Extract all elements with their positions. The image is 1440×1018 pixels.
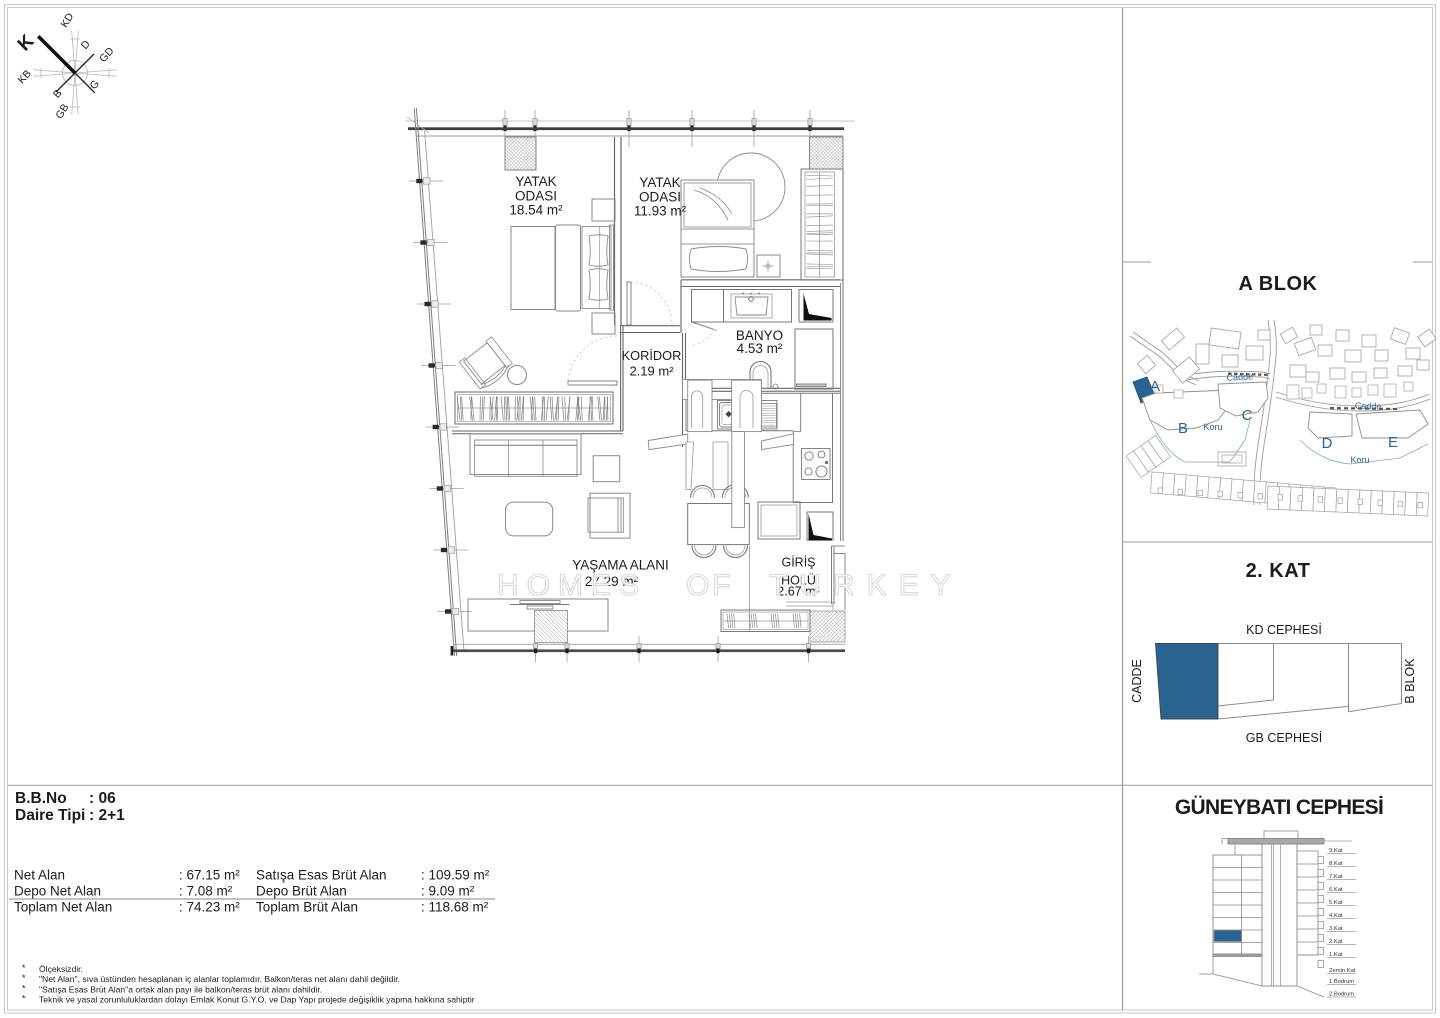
svg-text:4.Kat: 4.Kat — [1329, 913, 1343, 919]
svg-text:*: * — [22, 994, 26, 1004]
svg-text:D: D — [79, 38, 93, 52]
svg-text:: 118.68 m²: : 118.68 m² — [421, 900, 489, 915]
svg-text:Satışa Esas Brüt Alan: Satışa Esas Brüt Alan — [256, 868, 387, 883]
svg-text:11.93 m²: 11.93 m² — [634, 204, 687, 219]
svg-text:OF: OF — [686, 569, 734, 602]
svg-text:Depo Brüt Alan: Depo Brüt Alan — [256, 884, 347, 899]
svg-text:KB: KB — [16, 68, 34, 86]
svg-text:Koru: Koru — [1350, 455, 1369, 465]
svg-text:2.19 m²: 2.19 m² — [629, 364, 674, 379]
svg-text:YATAK: YATAK — [639, 175, 680, 190]
svg-text:4.53 m²: 4.53 m² — [737, 341, 783, 356]
svg-text:: 109.59 m²: : 109.59 m² — [421, 868, 490, 883]
svg-text:ODASI: ODASI — [639, 189, 681, 204]
svg-text:B: B — [1178, 420, 1188, 437]
svg-text:1.Kat: 1.Kat — [1329, 952, 1343, 958]
svg-text:3.Kat: 3.Kat — [1329, 926, 1343, 932]
svg-text:CADDE: CADDE — [1130, 659, 1144, 703]
svg-text:Ölçeksizdir.: Ölçeksizdir. — [39, 964, 83, 974]
svg-text:GD: GD — [97, 45, 117, 65]
svg-text:G: G — [88, 78, 102, 92]
svg-text:9.Kat: 9.Kat — [1329, 848, 1343, 854]
svg-text:: 7.08 m²: : 7.08 m² — [179, 884, 233, 899]
svg-text:B: B — [51, 87, 65, 100]
svg-text:1.Bodrum: 1.Bodrum — [1329, 979, 1354, 985]
svg-text:: 9.09 m²: : 9.09 m² — [421, 884, 475, 899]
svg-text:Daire Tipi: Daire Tipi — [15, 807, 85, 824]
svg-text:Zemin Kat: Zemin Kat — [1329, 968, 1356, 974]
svg-text:B BLOK: B BLOK — [1403, 658, 1417, 704]
svg-text:KORİDOR: KORİDOR — [622, 348, 682, 363]
svg-text:TURKEY: TURKEY — [769, 569, 963, 602]
svg-text:GÜNEYBATI CEPHESİ: GÜNEYBATI CEPHESİ — [1175, 796, 1383, 819]
svg-text:A BLOK: A BLOK — [1239, 273, 1318, 295]
svg-text:Net Alan: Net Alan — [14, 868, 65, 883]
svg-text:GB: GB — [53, 102, 71, 121]
svg-text:: 06: : 06 — [89, 790, 116, 807]
svg-text:K: K — [14, 31, 39, 56]
svg-text:: 2+1: : 2+1 — [89, 807, 125, 824]
svg-text:C: C — [1242, 407, 1253, 424]
svg-text:"Satışa Esas Brüt Alan"a ortak: "Satışa Esas Brüt Alan"a ortak alan payı… — [39, 984, 322, 994]
svg-text:: 74.23 m²: : 74.23 m² — [179, 900, 240, 915]
svg-text:2.Kat: 2.Kat — [1329, 939, 1343, 945]
svg-text:5.Kat: 5.Kat — [1329, 900, 1343, 906]
svg-text:Cadde: Cadde — [1226, 371, 1253, 382]
svg-text:YATAK: YATAK — [515, 174, 556, 189]
svg-text:KD: KD — [59, 11, 77, 30]
svg-text:GB CEPHESİ: GB CEPHESİ — [1246, 731, 1322, 745]
svg-text:: 67.15 m²: : 67.15 m² — [179, 868, 240, 883]
svg-text:Cadde: Cadde — [1355, 401, 1382, 412]
svg-text:D: D — [1322, 435, 1333, 452]
svg-text:6.Kat: 6.Kat — [1329, 887, 1343, 893]
svg-text:ODASI: ODASI — [515, 188, 557, 203]
svg-text:8.Kat: 8.Kat — [1329, 861, 1343, 867]
svg-text:E: E — [1388, 434, 1398, 451]
svg-text:"Net Alan", sıva üstünden hesa: "Net Alan", sıva üstünden hesaplanan iç … — [39, 974, 400, 984]
svg-text:Depo Net Alan: Depo Net Alan — [14, 884, 101, 899]
svg-text:*: * — [22, 973, 26, 983]
svg-text:7.Kat: 7.Kat — [1329, 874, 1343, 880]
svg-text:HOMES: HOMES — [497, 569, 647, 602]
svg-text:18.54 m²: 18.54 m² — [509, 203, 563, 218]
svg-text:GİRİŞ: GİRİŞ — [781, 556, 815, 570]
svg-text:Toplam Brüt Alan: Toplam Brüt Alan — [256, 900, 358, 915]
svg-text:*: * — [22, 963, 26, 973]
svg-text:2.Bodrum: 2.Bodrum — [1329, 992, 1354, 998]
svg-text:Koru: Koru — [1203, 422, 1222, 432]
svg-text:Teknik ve yasal zorunluluklard: Teknik ve yasal zorunluluklardan dolayı … — [39, 995, 475, 1005]
svg-text:Toplam Net Alan: Toplam Net Alan — [14, 900, 112, 915]
svg-text:2. KAT: 2. KAT — [1246, 560, 1311, 582]
svg-text:KD CEPHESİ: KD CEPHESİ — [1246, 623, 1322, 637]
svg-text:B.B.No: B.B.No — [15, 790, 67, 807]
svg-text:*: * — [22, 983, 26, 993]
svg-text:A: A — [1150, 378, 1160, 395]
